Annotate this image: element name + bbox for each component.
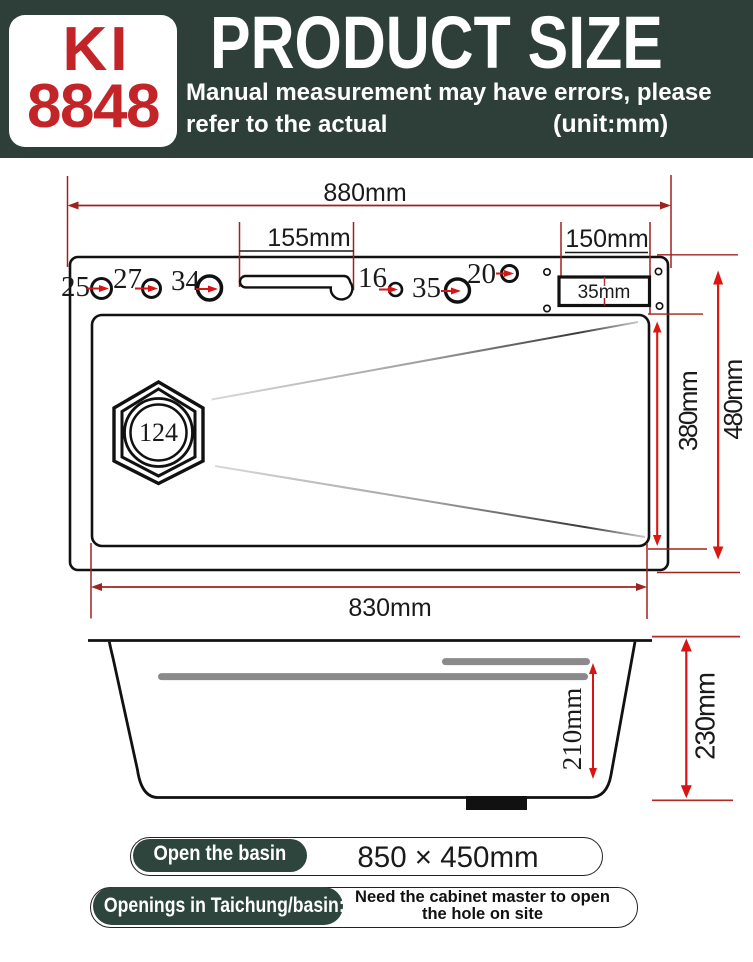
svg-text:880mm: 880mm xyxy=(323,179,406,207)
svg-text:35: 35 xyxy=(412,272,441,304)
svg-text:155mm: 155mm xyxy=(267,224,350,252)
svg-text:35mm: 35mm xyxy=(578,282,631,303)
svg-text:34: 34 xyxy=(171,265,201,297)
svg-text:380mm: 380mm xyxy=(673,372,703,451)
svg-text:27: 27 xyxy=(113,263,142,295)
svg-text:25: 25 xyxy=(61,271,90,303)
svg-text:124: 124 xyxy=(139,418,178,447)
svg-text:20: 20 xyxy=(467,258,496,290)
svg-text:230mm: 230mm xyxy=(690,673,721,760)
svg-text:480mm: 480mm xyxy=(718,360,748,439)
svg-text:830mm: 830mm xyxy=(348,594,431,622)
svg-text:210mm: 210mm xyxy=(557,688,587,771)
svg-text:150mm: 150mm xyxy=(565,225,648,253)
